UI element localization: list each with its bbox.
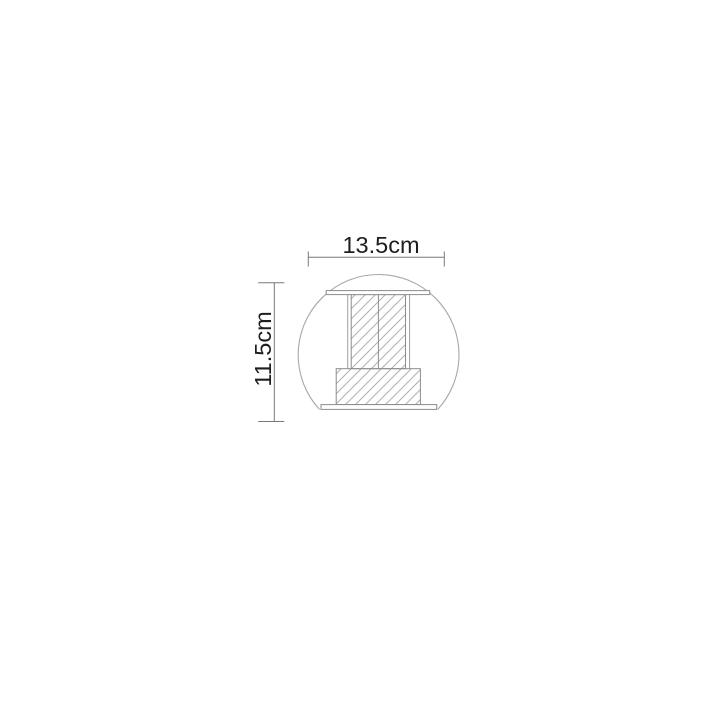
svg-text:13.5cm: 13.5cm xyxy=(342,232,419,258)
svg-text:11.5cm: 11.5cm xyxy=(250,311,276,386)
